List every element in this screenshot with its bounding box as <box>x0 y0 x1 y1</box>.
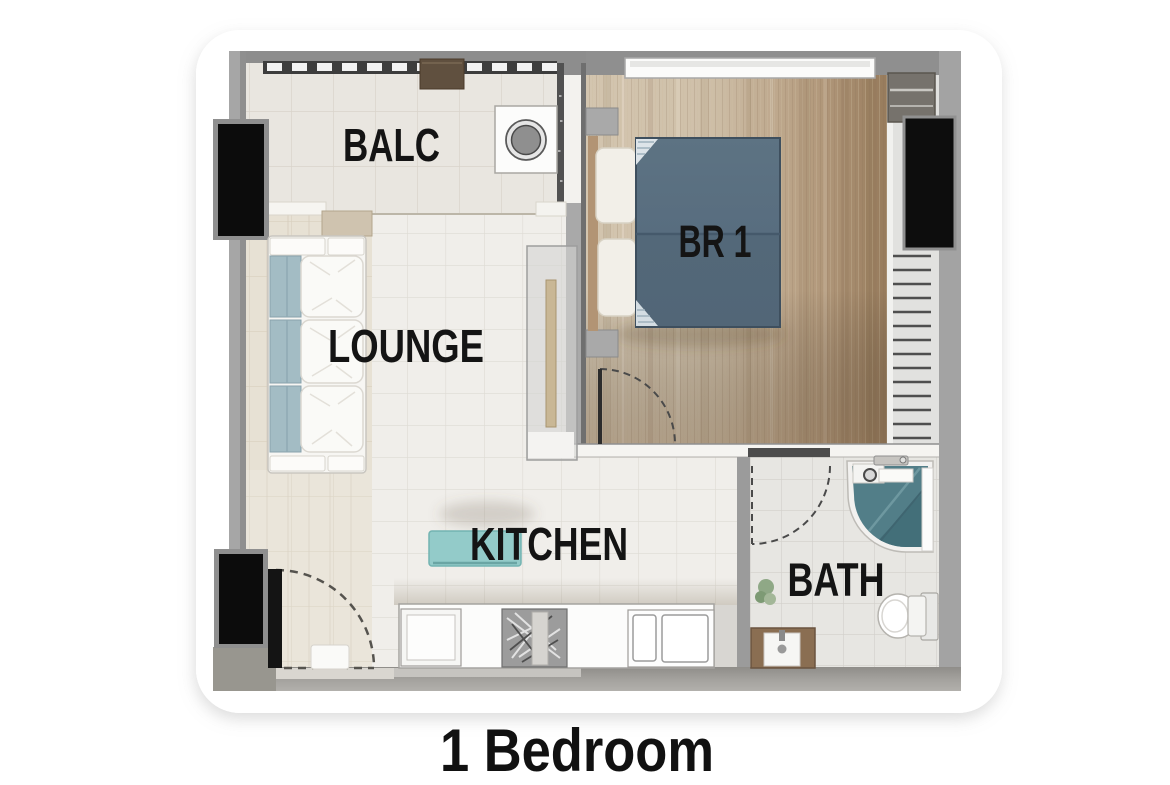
svg-text:BR 1: BR 1 <box>679 216 752 267</box>
svg-text:LOUNGE: LOUNGE <box>328 320 484 372</box>
svg-text:BATH: BATH <box>788 553 885 606</box>
svg-text:1 Bedroom: 1 Bedroom <box>440 717 714 784</box>
svg-text:BALC: BALC <box>343 119 440 171</box>
svg-text:KITCHEN: KITCHEN <box>470 518 628 570</box>
